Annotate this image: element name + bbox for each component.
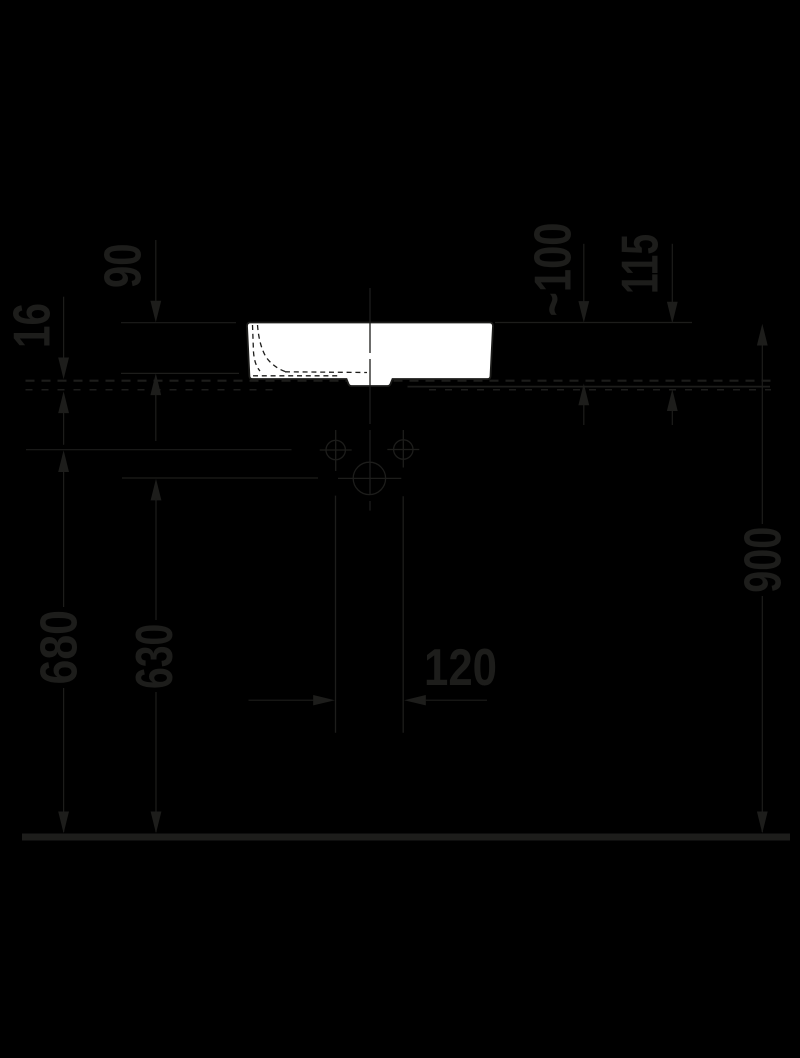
svg-text:90: 90 <box>95 244 153 289</box>
svg-text:~100: ~100 <box>525 223 583 317</box>
svg-text:16: 16 <box>4 303 62 348</box>
svg-text:120: 120 <box>424 639 497 697</box>
svg-text:115: 115 <box>612 234 670 294</box>
svg-text:680: 680 <box>30 610 88 685</box>
svg-text:900: 900 <box>735 527 793 593</box>
svg-text:630: 630 <box>126 624 184 689</box>
